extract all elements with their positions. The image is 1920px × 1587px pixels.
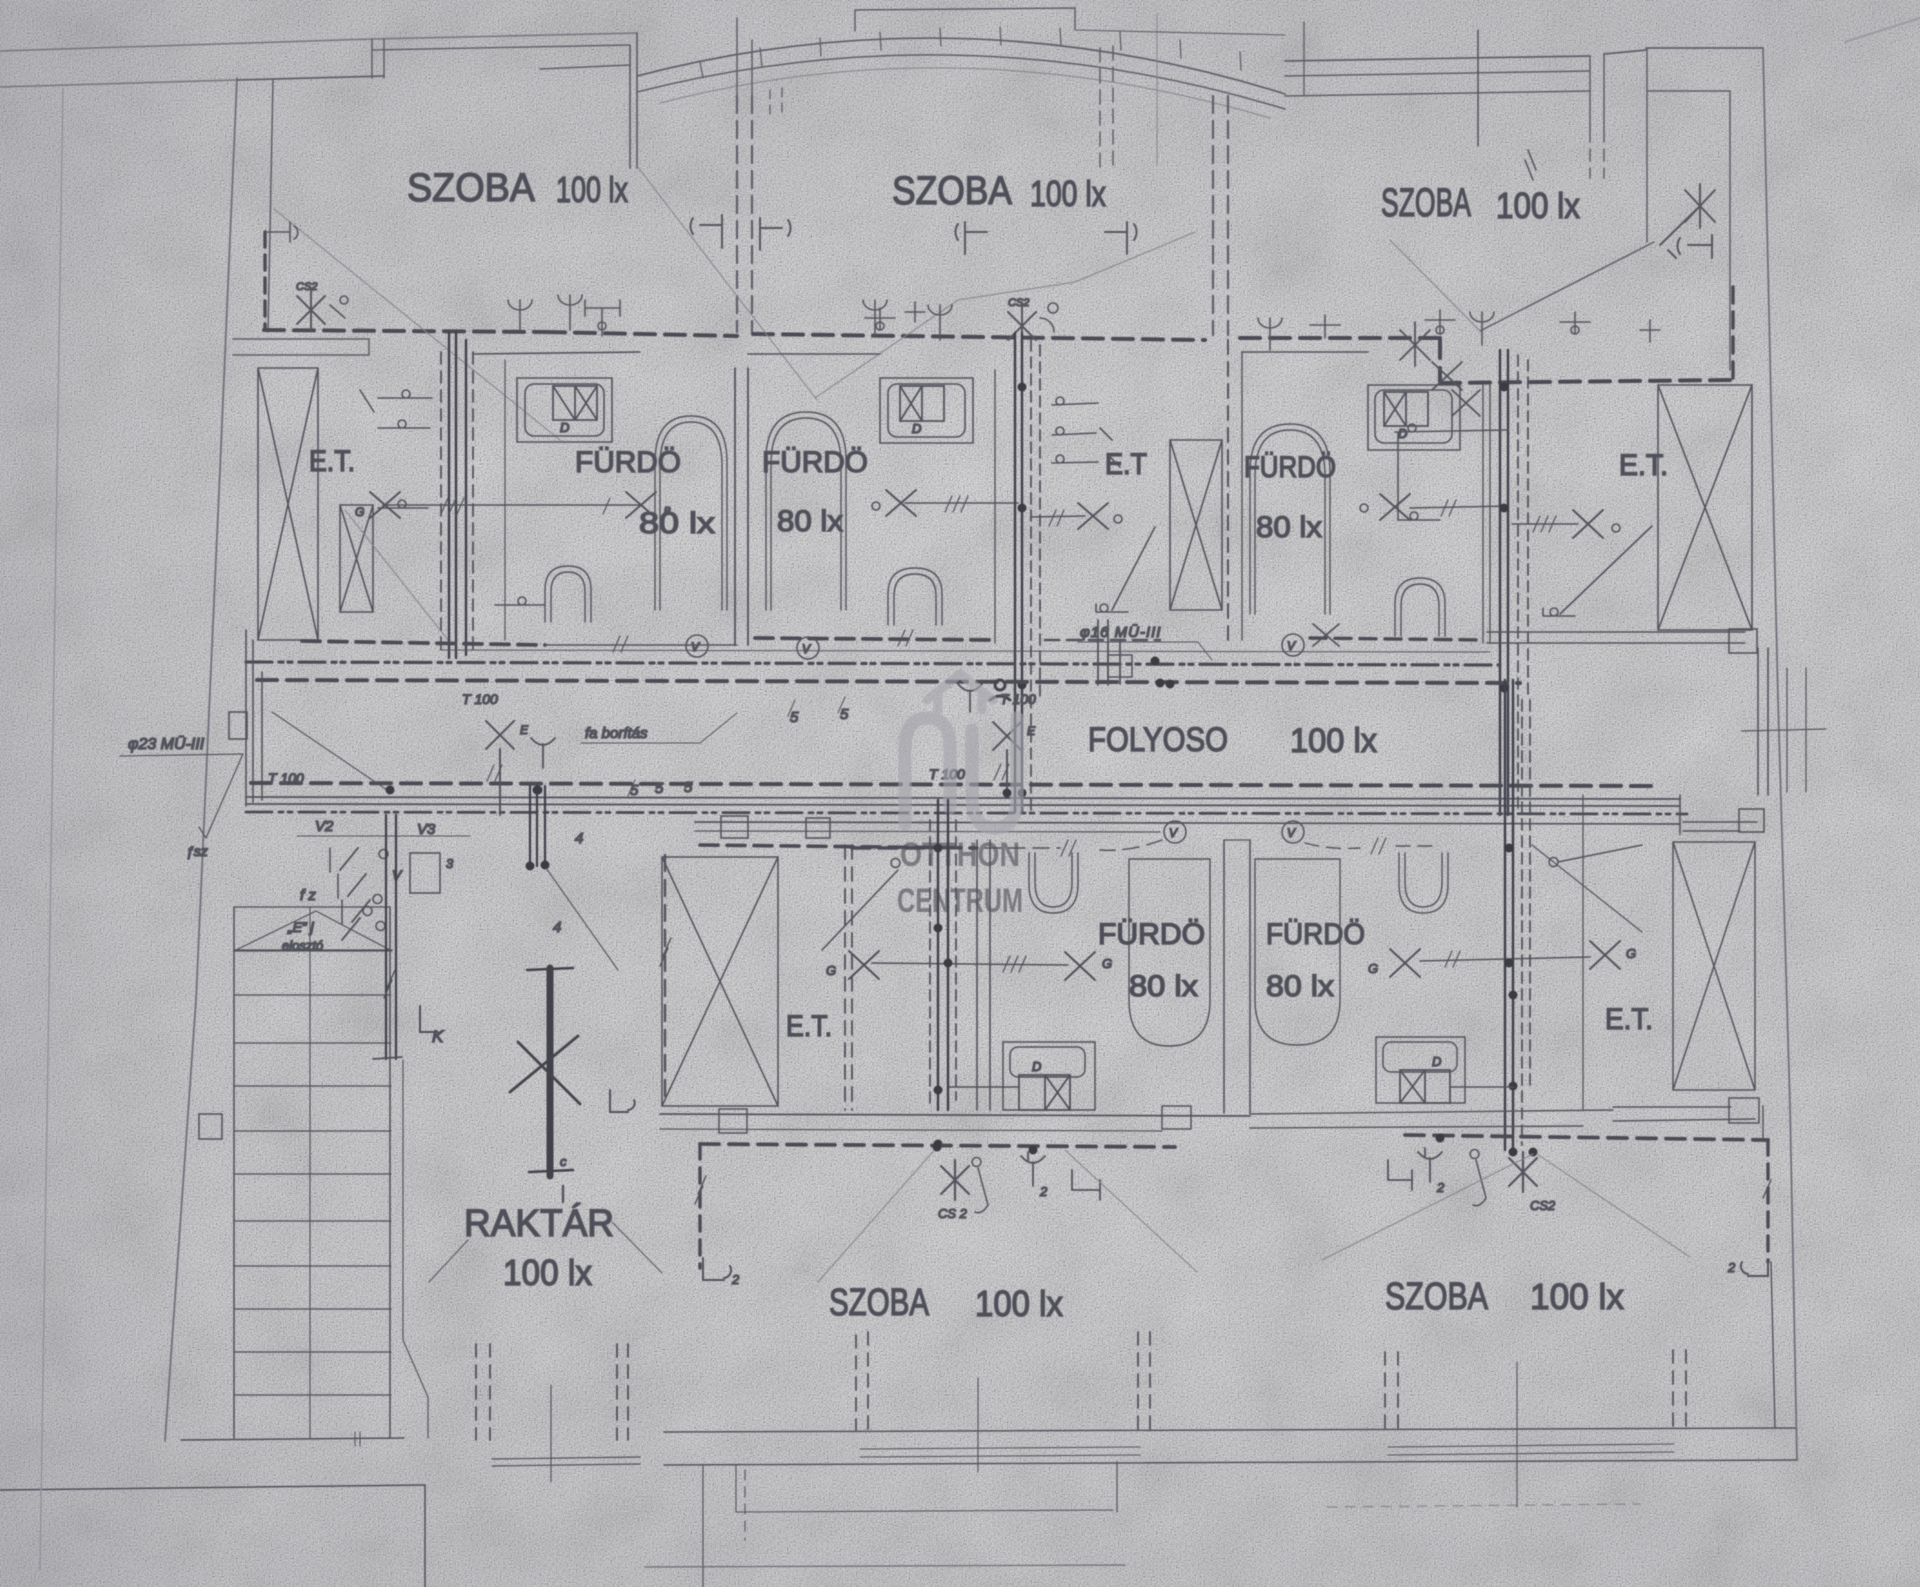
svg-text:FÜRDÖ: FÜRDÖ [1098,918,1205,951]
svg-text:80 lx: 80 lx [1129,970,1198,1003]
svg-text:2: 2 [1436,1180,1445,1195]
svg-text:4: 4 [553,919,561,936]
svg-text:100 lx: 100 lx [1530,1276,1624,1317]
svg-text:SZOBA: SZOBA [1381,181,1471,225]
svg-text:E: E [1027,724,1036,738]
svg-text:FÜRDÖ: FÜRDÖ [1244,451,1336,484]
svg-text:φ16 MŪ-III: φ16 MŪ-III [1080,624,1161,641]
svg-text:RAKTÁR: RAKTÁR [464,1202,614,1245]
svg-text:SZOBA: SZOBA [407,166,535,210]
svg-text:V: V [802,642,811,656]
svg-text:G: G [1368,961,1378,976]
svg-text:E.T.: E.T. [786,1010,832,1043]
svg-text:100 lx: 100 lx [1290,722,1377,760]
svg-text:T 100: T 100 [1000,691,1036,707]
svg-text:V: V [1287,639,1296,653]
svg-text:elosztó: elosztó [282,938,323,953]
svg-text:E: E [520,723,529,737]
svg-text:80 lx: 80 lx [777,505,843,538]
svg-text:100 lx: 100 lx [556,169,628,210]
svg-text:2: 2 [1727,1260,1736,1275]
svg-text:D: D [1032,1059,1041,1074]
svg-text:E.T: E.T [1105,448,1147,481]
svg-text:4: 4 [575,830,583,847]
svg-text:V: V [691,640,700,654]
svg-text:100 lx: 100 lx [975,1283,1063,1324]
svg-text:E.T.: E.T. [1619,449,1668,482]
svg-text:FÜRDÖ: FÜRDÖ [762,446,868,479]
svg-text:CS2: CS2 [296,281,317,293]
svg-text:G: G [1102,956,1112,971]
svg-text:D: D [560,420,569,435]
svg-text:T 100: T 100 [462,691,498,707]
svg-text:100 lx: 100 lx [1496,185,1580,226]
svg-text:100 lx: 100 lx [503,1252,592,1293]
svg-text:G: G [826,963,836,978]
svg-text:5: 5 [630,782,639,799]
svg-text:SZOBA: SZOBA [829,1282,930,1324]
svg-text:OTTHON: OTTHON [900,836,1020,874]
svg-text:E.T.: E.T. [309,445,355,478]
svg-text:V2: V2 [315,818,334,835]
svg-text:G: G [1626,946,1636,961]
svg-text:80 lx: 80 lx [639,507,715,540]
svg-text:5: 5 [684,779,693,796]
svg-text:2: 2 [731,1272,740,1287]
svg-text:CS 2: CS 2 [938,1206,968,1221]
svg-text:3: 3 [446,856,454,871]
svg-text:CS2: CS2 [1008,297,1029,309]
svg-text:G: G [355,505,364,519]
svg-text:E.T.: E.T. [1605,1003,1653,1036]
svg-text:D: D [912,421,921,436]
svg-text:CENTRUM: CENTRUM [897,882,1023,920]
svg-text:fa borítás: fa borítás [585,725,648,742]
svg-text:c: c [560,1154,567,1169]
svg-text:ƒsz: ƒsz [186,843,208,859]
svg-text:100 lx: 100 lx [1030,173,1106,214]
svg-text:80 lx: 80 lx [1256,511,1322,544]
svg-text:K: K [432,1027,444,1046]
svg-text:5: 5 [840,706,849,723]
svg-text:φ23 MŪ-III: φ23 MŪ-III [128,735,205,753]
svg-text:V: V [1169,826,1178,840]
svg-text:80 lx: 80 lx [1266,970,1334,1003]
svg-text:V3: V3 [417,821,436,838]
svg-text:D: D [1432,1054,1441,1069]
svg-text:f z: f z [300,887,316,904]
svg-text:T 100: T 100 [268,770,304,786]
svg-text:FÜRDÖ: FÜRDÖ [1266,918,1365,951]
svg-text:CS2: CS2 [1530,1198,1556,1213]
svg-text:FÜRDÖ: FÜRDÖ [575,446,681,479]
svg-text:D: D [1398,426,1407,441]
svg-text:2: 2 [1039,1184,1048,1199]
svg-text:5: 5 [790,709,799,726]
svg-text:V: V [1287,826,1296,840]
svg-text:SZOBA: SZOBA [892,169,1012,213]
svg-text:FOLYOSO: FOLYOSO [1088,721,1228,759]
svg-text:SZOBA: SZOBA [1385,1276,1489,1318]
svg-text:5: 5 [655,780,664,797]
